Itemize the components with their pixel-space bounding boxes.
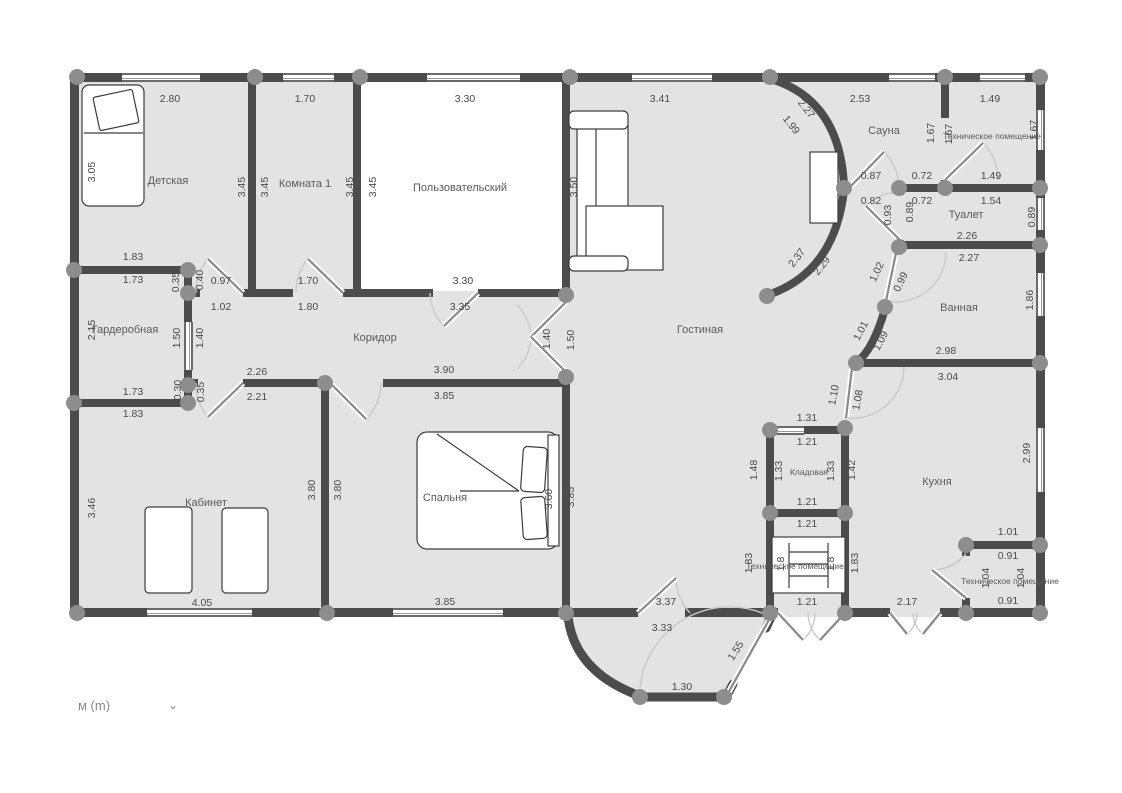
window bbox=[1036, 273, 1045, 316]
wall-joint[interactable] bbox=[837, 505, 853, 521]
dimension-label: 1.50 bbox=[171, 328, 183, 348]
window bbox=[147, 608, 252, 617]
dimension-label: 1.70 bbox=[298, 275, 318, 287]
dimension-label: 0.89 bbox=[1026, 207, 1038, 227]
dimension-label: 1.83 bbox=[849, 553, 861, 573]
dimension-label: 2.99 bbox=[1021, 443, 1033, 463]
dimension-label: 2.21 bbox=[247, 391, 267, 403]
dimension-label: 0.97 bbox=[211, 275, 231, 287]
dimension-label: 3.60 bbox=[543, 489, 555, 509]
dimension-label: 1.21 bbox=[797, 518, 817, 530]
dimension-label: 0.35 bbox=[195, 382, 207, 402]
window bbox=[1036, 428, 1045, 492]
dimension-label: 3.30 bbox=[453, 275, 473, 287]
dimension-label: 0.82 bbox=[861, 195, 881, 207]
window bbox=[122, 73, 200, 82]
room-label: Комната 1 bbox=[279, 178, 331, 190]
sauna-bench-icon bbox=[810, 152, 838, 223]
room-label: Кухня bbox=[922, 476, 951, 488]
window bbox=[889, 73, 935, 82]
window bbox=[184, 322, 193, 370]
dimension-label: 3.80 bbox=[332, 480, 344, 500]
wall-joint[interactable] bbox=[848, 355, 864, 371]
dimension-label: 3.50 bbox=[568, 177, 580, 197]
dimension-label: 3.46 bbox=[86, 498, 98, 518]
plan-detail-layer bbox=[0, 0, 1122, 793]
dimension-label: 0.30 bbox=[172, 380, 184, 400]
dimension-label: 1.04 bbox=[980, 568, 992, 588]
wall-joint[interactable] bbox=[759, 288, 775, 304]
room-label: Коридор bbox=[353, 332, 396, 344]
dimension-label: 1.49 bbox=[980, 93, 1000, 105]
wall-joint[interactable] bbox=[632, 689, 648, 705]
wall-joint[interactable] bbox=[1032, 237, 1048, 253]
dimension-label: 1.73 bbox=[123, 274, 143, 286]
room-label: Кабинет bbox=[185, 497, 227, 509]
dimension-label: 1.04 bbox=[1015, 568, 1027, 588]
dimension-label: 1.67 bbox=[1028, 120, 1040, 140]
dimension-label: 1.83 bbox=[123, 408, 143, 420]
dimension-label: 3.85 bbox=[434, 390, 454, 402]
dimension-label: 1.33 bbox=[773, 461, 785, 481]
wall-joint[interactable] bbox=[762, 422, 778, 438]
dimension-label: 1.31 bbox=[797, 412, 817, 424]
dimension-label: 1.33 bbox=[825, 461, 837, 481]
dimension-label: 2.27 bbox=[959, 252, 979, 264]
dimension-label: 0.72 bbox=[912, 170, 932, 182]
wall-joint[interactable] bbox=[1032, 69, 1048, 85]
wall-joint[interactable] bbox=[837, 420, 853, 436]
door-leaf bbox=[208, 383, 243, 417]
room-label: Гардеробная bbox=[92, 324, 159, 336]
dimension-label: 1.01 bbox=[998, 526, 1018, 538]
units-label[interactable]: м (m) bbox=[78, 698, 110, 712]
door-leaf bbox=[886, 253, 896, 301]
dimension-label: 3.45 bbox=[344, 177, 356, 197]
wall-joint[interactable] bbox=[1032, 537, 1048, 553]
wall-joint[interactable] bbox=[716, 689, 732, 705]
dimension-label: 2.53 bbox=[850, 93, 870, 105]
dimension-label: 1.83 bbox=[743, 553, 755, 573]
door-leaf bbox=[330, 383, 366, 419]
wall-joint[interactable] bbox=[69, 605, 85, 621]
dimension-label: 2.98 bbox=[936, 345, 956, 357]
dimension-label: 3.45 bbox=[236, 177, 248, 197]
dimension-label: 1.67 bbox=[943, 124, 955, 144]
dimension-label: 2.17 bbox=[897, 596, 917, 608]
dimension-label: 1.49 bbox=[981, 170, 1001, 182]
chevron-down-icon[interactable]: ⌄ bbox=[168, 698, 178, 712]
dimension-label: 1.02 bbox=[211, 301, 231, 313]
dimension-label: 3.85 bbox=[435, 596, 455, 608]
dimension-label: 3.04 bbox=[938, 371, 958, 383]
dimension-label: 1.21 bbox=[797, 596, 817, 608]
floor-plan-canvas: ДетскаяКомната 1ПользовательскийГостиная… bbox=[0, 0, 1122, 793]
dimension-label: 1.42 bbox=[846, 460, 858, 480]
wall-joint[interactable] bbox=[958, 605, 974, 621]
dimension-label: 1.70 bbox=[295, 93, 315, 105]
dimension-label: 3.90 bbox=[434, 364, 454, 376]
wall-joint[interactable] bbox=[69, 69, 85, 85]
wall-joint[interactable] bbox=[891, 180, 907, 196]
window bbox=[427, 73, 520, 82]
wall-joint[interactable] bbox=[319, 605, 335, 621]
window bbox=[632, 73, 712, 82]
door-leaf bbox=[778, 613, 803, 640]
wall-joint[interactable] bbox=[562, 69, 578, 85]
room-label: Туалет bbox=[949, 209, 984, 221]
dimension-label: 1.80 bbox=[298, 301, 318, 313]
dimension-label: 1.83 bbox=[123, 251, 143, 263]
dimension-label: 0.89 bbox=[904, 202, 916, 222]
wall-joint[interactable] bbox=[558, 369, 574, 385]
dimension-label: 3.05 bbox=[86, 162, 98, 182]
room-label: Ванная bbox=[940, 302, 978, 314]
window bbox=[980, 73, 1025, 82]
room-label: Спальня bbox=[423, 492, 467, 504]
dimension-label: 1.40 bbox=[541, 329, 553, 349]
dimension-label: 1.86 bbox=[1024, 290, 1036, 310]
wall-joint[interactable] bbox=[1032, 355, 1048, 371]
wall-joint[interactable] bbox=[836, 180, 852, 196]
dimension-label: 1.21 bbox=[797, 496, 817, 508]
dimension-label: 2.15 bbox=[86, 320, 98, 340]
door-leaf bbox=[945, 143, 983, 180]
door-leaf bbox=[890, 613, 907, 634]
wall-joint[interactable] bbox=[958, 537, 974, 553]
window bbox=[393, 608, 503, 617]
wall-joint[interactable] bbox=[891, 239, 907, 255]
dimension-label: 3.85 bbox=[565, 487, 577, 507]
door-leaf bbox=[923, 613, 940, 634]
dimension-label: 4.05 bbox=[192, 597, 212, 609]
wall-joint[interactable] bbox=[1032, 605, 1048, 621]
dimension-label: 0.35 bbox=[170, 272, 182, 292]
window bbox=[283, 73, 334, 82]
wall-joint[interactable] bbox=[66, 262, 82, 278]
dimension-label: 3.35 bbox=[450, 301, 470, 313]
wall-joint[interactable] bbox=[762, 69, 778, 85]
room-label: Детская bbox=[148, 175, 189, 187]
dimension-label: 0.93 bbox=[882, 205, 894, 225]
dimension-label: 0.87 bbox=[861, 170, 881, 182]
dimension-label: 3.30 bbox=[455, 93, 475, 105]
dimension-label: 3.33 bbox=[652, 622, 672, 634]
bed-double-icon bbox=[417, 432, 559, 549]
wall-joint[interactable] bbox=[317, 375, 333, 391]
dimension-label: 1.67 bbox=[925, 123, 937, 143]
dimension-label: 0.40 bbox=[194, 270, 206, 290]
wall-joint[interactable] bbox=[837, 605, 853, 621]
dimension-label: 1.50 bbox=[565, 330, 577, 350]
dimension-label: 2.26 bbox=[957, 230, 977, 242]
wall-joint[interactable] bbox=[877, 299, 893, 315]
dimension-label: 0.91 bbox=[998, 550, 1018, 562]
wall-joint[interactable] bbox=[937, 180, 953, 196]
dimension-label: 3.45 bbox=[367, 177, 379, 197]
room-label: Техническое помещение bbox=[961, 576, 1059, 586]
dimension-label: 3.37 bbox=[656, 596, 676, 608]
units-selector[interactable]: м (m) ⌄ bbox=[78, 698, 178, 712]
wall-joint[interactable] bbox=[762, 505, 778, 521]
dimension-label: 1.54 bbox=[981, 195, 1001, 207]
room-label: Гостиная bbox=[677, 324, 723, 336]
room-label: Сауна bbox=[868, 125, 900, 137]
dimension-label: 1.8 bbox=[775, 557, 787, 572]
wall-joint[interactable] bbox=[558, 287, 574, 303]
dimension-label: 1.73 bbox=[123, 386, 143, 398]
wall-joint[interactable] bbox=[762, 605, 778, 621]
dimension-label: 2.80 bbox=[160, 93, 180, 105]
wall-joint[interactable] bbox=[937, 69, 953, 85]
room-label: Техническое помещение bbox=[943, 131, 1041, 141]
bed-single-icon bbox=[82, 85, 144, 206]
dimension-label: 1.48 bbox=[748, 460, 760, 480]
wall-joint[interactable] bbox=[247, 69, 263, 85]
dimension-label: 0.91 bbox=[998, 595, 1018, 607]
dimension-label: 2.26 bbox=[247, 366, 267, 378]
desk-icons bbox=[145, 507, 268, 593]
dimension-label: 1.8 bbox=[825, 557, 837, 572]
sofa-icon bbox=[569, 111, 663, 271]
room-label: Пользовательский bbox=[413, 182, 507, 194]
dimension-label: 3.80 bbox=[306, 480, 318, 500]
dimension-label: 3.45 bbox=[259, 177, 271, 197]
wall-joint[interactable] bbox=[1032, 180, 1048, 196]
wall-joint[interactable] bbox=[558, 605, 574, 621]
dimension-label: 3.41 bbox=[650, 93, 670, 105]
wall-joint[interactable] bbox=[352, 69, 368, 85]
dimension-label: 1.40 bbox=[194, 328, 206, 348]
wall-joint[interactable] bbox=[66, 395, 82, 411]
dimension-label: 1.30 bbox=[672, 681, 692, 693]
room-label: Кладовая bbox=[790, 467, 828, 477]
dimension-label: 1.21 bbox=[797, 436, 817, 448]
